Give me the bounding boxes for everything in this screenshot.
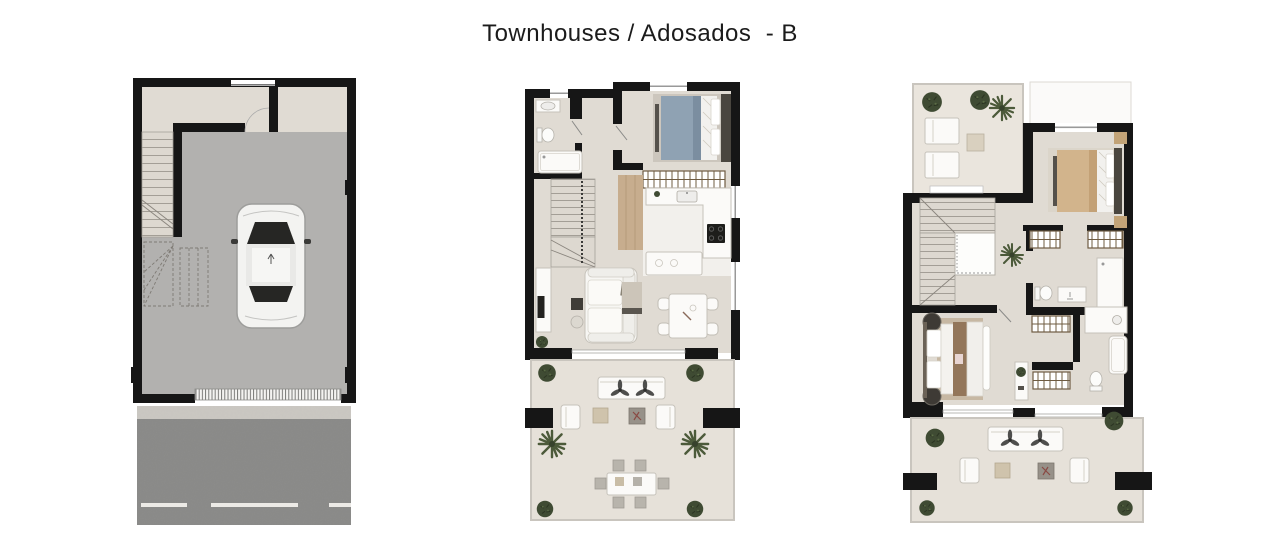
outdoor-table — [607, 473, 656, 495]
nightstand — [1114, 132, 1127, 144]
bedroom — [653, 94, 731, 162]
wardrobe — [643, 171, 725, 188]
outdoor-sofa — [988, 427, 1063, 451]
headboard — [1114, 148, 1122, 214]
sliding-glass-door — [1035, 414, 1102, 417]
sliding-glass-door — [572, 350, 685, 353]
bathtub — [538, 151, 582, 173]
garage-door — [195, 389, 341, 400]
toilet — [537, 128, 554, 142]
bed-bench — [983, 326, 990, 390]
car-mirror — [231, 239, 238, 244]
side-table — [571, 316, 583, 328]
chaise — [622, 282, 642, 308]
car-mirror — [304, 239, 311, 244]
bed-bench — [1053, 156, 1057, 206]
headboard — [721, 94, 731, 162]
dining-chair — [658, 298, 670, 310]
hall-console — [1015, 362, 1028, 400]
outdoor-armchair — [656, 405, 675, 429]
sun-lounger — [925, 152, 959, 178]
pillow — [711, 99, 720, 125]
window — [930, 186, 983, 193]
tv — [538, 296, 545, 318]
side-table — [967, 134, 984, 151]
kitchen-island — [646, 252, 702, 275]
pillow — [927, 330, 941, 357]
roof-void — [1030, 82, 1131, 125]
side-table — [995, 463, 1010, 478]
lower-terrace — [903, 412, 1152, 522]
car-windshield — [247, 222, 295, 244]
upper-terrace — [913, 84, 1023, 194]
pillow — [1106, 154, 1114, 178]
dining-chair — [706, 298, 718, 310]
dining-chair — [658, 323, 670, 335]
sun-lounger — [925, 118, 959, 144]
staircase — [551, 179, 595, 267]
nightstand — [1114, 216, 1127, 228]
plant-pot — [654, 191, 660, 197]
dining-table — [669, 294, 707, 338]
bed-bench — [655, 104, 659, 152]
dining-chair — [706, 323, 718, 335]
car — [231, 204, 311, 328]
shower — [1097, 258, 1123, 307]
side-table — [593, 408, 608, 423]
sliding-glass-door — [943, 410, 1013, 413]
staircase — [142, 132, 173, 237]
coffee-table — [571, 298, 583, 310]
cooktop — [707, 224, 725, 243]
street — [137, 406, 351, 525]
outdoor-sofa — [598, 377, 665, 399]
pillow — [711, 129, 720, 155]
floor-plan-sheet: Townhouses / Adosados - B — [0, 0, 1280, 538]
page-title: Townhouses / Adosados - B — [0, 20, 1280, 48]
bathtub — [1109, 336, 1127, 374]
stair-void — [955, 233, 995, 275]
toilet — [1035, 286, 1052, 300]
car-rear-window — [249, 286, 293, 302]
basement-garage-plan — [131, 76, 358, 525]
outdoor-armchair — [561, 405, 580, 429]
terrace — [525, 360, 740, 520]
headboard — [923, 322, 927, 398]
vanity — [1058, 287, 1086, 302]
outdoor-armchair — [1070, 458, 1089, 483]
toilet — [1090, 372, 1102, 392]
ground-floor-plan — [525, 82, 740, 525]
pillow — [927, 361, 941, 388]
tall-cabinets — [618, 175, 643, 250]
outdoor-armchair — [960, 458, 979, 483]
pillow — [1106, 182, 1114, 206]
first-floor-plan — [903, 70, 1152, 532]
